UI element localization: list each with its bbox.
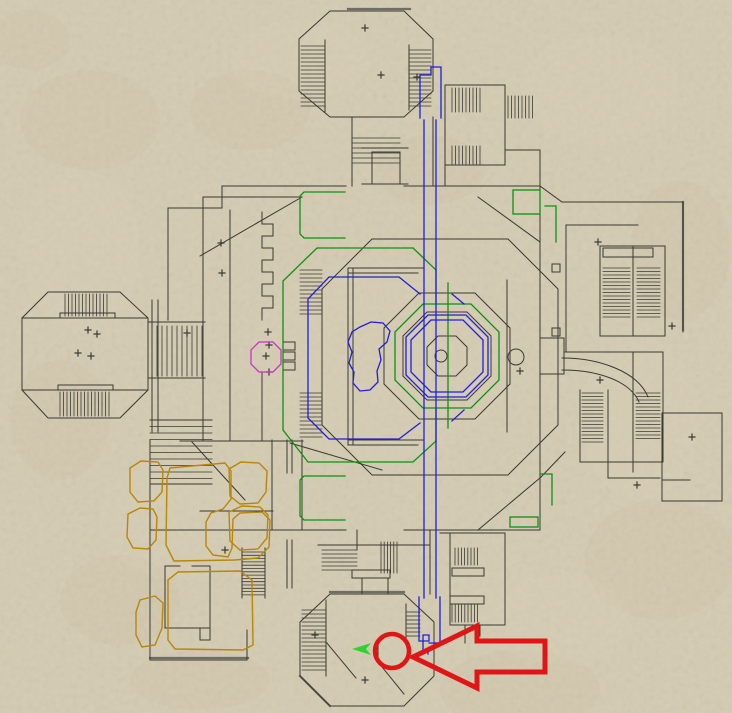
map-viewport: [0, 0, 732, 713]
zone-map-svg: [0, 0, 732, 713]
